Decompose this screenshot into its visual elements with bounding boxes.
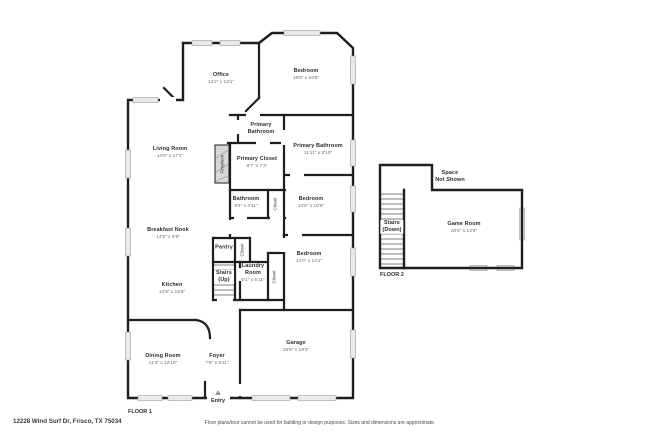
room-label-game-room: Game Room 20'5" x 13'9" — [447, 221, 480, 235]
room-name: Pantry — [215, 244, 233, 251]
room-name: Dining Room — [145, 353, 180, 360]
room-label-kitchen: Kitchen 14'9" x 15'6" — [159, 282, 185, 296]
room-dims: 18'6" x 16'6" — [293, 76, 319, 82]
floor1-tag: FLOOR 1 — [128, 409, 152, 415]
room-dims: 14'9" x 9'9" — [156, 235, 180, 241]
room-label-garage: Garage 18'6" x 19'4" — [283, 340, 309, 354]
room-dims: 8'7" x 7'3" — [247, 164, 268, 170]
floorplan-page: Office 13'2" x 13'1" Bedroom 18'6" x 16'… — [0, 0, 650, 433]
room-name: Foyer — [209, 353, 224, 360]
room-dims: 7'6" x 9'11" — [205, 361, 228, 367]
entry-label: Entry — [211, 398, 225, 404]
room-name: Bedroom — [299, 196, 324, 203]
room-label-bedroom-mid: Bedroom 14'5" x 10'5" — [298, 196, 324, 210]
room-label-breakfast-nook: Breakfast Nook 14'9" x 9'9" — [147, 227, 189, 241]
room-name: Bedroom — [294, 68, 319, 75]
room-name: Office — [213, 72, 229, 79]
room-label-bedroom-top: Bedroom 18'6" x 16'6" — [293, 68, 319, 82]
room-dims: 5'1" x 5'11" — [241, 279, 264, 285]
room-label-stairs-up: Stairs (Up) — [214, 270, 234, 284]
closet-hall-label: Closet — [272, 270, 277, 283]
room-name: Garage — [286, 340, 306, 347]
floor2-tag: FLOOR 2 — [380, 272, 404, 278]
room-label-office: Office 13'2" x 13'1" — [208, 72, 234, 86]
room-label-living-room: Living Room 14'9" x 17'1" — [153, 146, 187, 160]
room-name: Stairs (Down) — [382, 220, 401, 234]
room-dims: 14'0" x 14'1" — [296, 259, 322, 265]
entry-arrow-icon — [215, 390, 221, 395]
room-dims: 14'5" x 10'5" — [298, 204, 324, 210]
room-label-primary-bathroom-hall: Primary Bathroom — [248, 122, 275, 136]
disclaimer-text: Floor plans/tour cannot be used for buil… — [205, 420, 435, 426]
room-name: Space Not Shown — [435, 170, 465, 184]
room-dims: 8'4" x 4'11" — [234, 204, 257, 210]
closet-bath-label: Closet — [273, 197, 278, 210]
floorplan-drawing — [0, 0, 650, 433]
room-label-bedroom-lower: Bedroom 14'0" x 14'1" — [296, 251, 322, 265]
room-dims: 20'5" x 13'9" — [451, 229, 477, 235]
room-dims: 11'3" x 12'10" — [149, 361, 178, 367]
fireplace-label: Fireplace — [220, 155, 225, 174]
room-name: Game Room — [447, 221, 480, 228]
room-label-pantry: Pantry — [215, 244, 233, 251]
room-label-dining-room: Dining Room 11'3" x 12'10" — [145, 353, 180, 367]
room-dims: 14'9" x 15'6" — [159, 290, 185, 296]
room-name: Living Room — [153, 146, 187, 153]
room-label-bathroom: Bathroom 8'4" x 4'11" — [233, 196, 260, 210]
room-label-stairs-down: Stairs (Down) — [380, 220, 403, 234]
room-dims: 11'11" x 8'10" — [304, 151, 332, 157]
room-name: Primary Bathroom — [293, 143, 343, 150]
property-address: 12228 Wind Surf Dr, Frisco, TX 75034 — [13, 418, 122, 425]
room-name: Laundry Room — [242, 263, 264, 277]
room-dims: 18'6" x 19'4" — [283, 348, 309, 354]
room-name: Breakfast Nook — [147, 227, 189, 234]
room-name: Primary Bathroom — [248, 122, 275, 136]
room-label-primary-closet: Primary Closet 8'7" x 7'3" — [237, 156, 277, 170]
room-name: Stairs (Up) — [216, 270, 232, 284]
room-name: Primary Closet — [237, 156, 277, 163]
room-dims: 13'2" x 13'1" — [208, 80, 234, 86]
windows — [126, 31, 525, 401]
room-label-foyer: Foyer 7'6" x 9'11" — [205, 353, 228, 367]
room-name: Bedroom — [297, 251, 322, 258]
closet-pantry-label: Closet — [240, 243, 245, 256]
room-label-laundry-room: Laundry Room 5'1" x 5'11" — [241, 263, 264, 285]
room-name: Kitchen — [162, 282, 183, 289]
room-dims: 14'9" x 17'1" — [157, 154, 183, 160]
room-name: Bathroom — [233, 196, 260, 203]
room-label-primary-bathroom: Primary Bathroom 11'11" x 8'10" — [293, 143, 343, 157]
room-label-space-not-shown: Space Not Shown — [435, 170, 465, 184]
